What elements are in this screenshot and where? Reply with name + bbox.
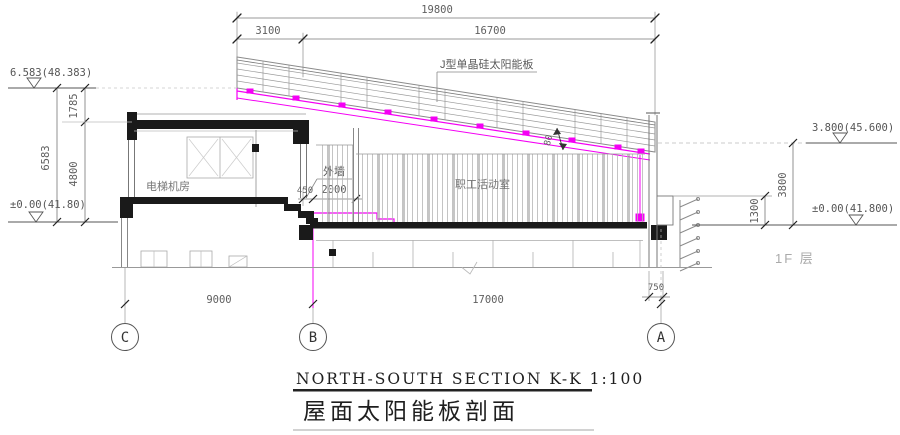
right-wall	[646, 113, 772, 271]
section-drawing-canvas: 19800 3100 16700 J型单晶硅太阳能板	[0, 0, 900, 435]
grid-bubbles: C B A	[112, 324, 675, 351]
cat-ladder	[680, 198, 700, 272]
dim-left-total: 6583	[40, 145, 52, 170]
right-dimensions: 1300 3800	[749, 139, 797, 229]
solar-panel-leader: J型单晶硅太阳能板	[437, 57, 537, 102]
floor-note: 1F 层	[775, 251, 815, 266]
dim-right-height: 3800	[777, 172, 789, 197]
elevator-room-building: 电梯机房	[120, 112, 318, 267]
level-left-top: 6.583(48.383)	[10, 67, 92, 79]
level-right-mid: 3.800(45.600)	[812, 122, 894, 134]
dim-top-seg1: 3100	[255, 25, 280, 37]
dim-top-seg2: 16700	[474, 25, 506, 37]
title-block: NORTH-SOUTH SECTION K-K 1:100 屋面太阳能板剖面	[293, 370, 644, 430]
dim-bay-ba: 17000	[472, 294, 504, 306]
solar-panel-label: J型单晶硅太阳能板	[440, 57, 534, 71]
level-right-zero: ±0.00(41.800)	[812, 203, 894, 215]
bottom-dimensions: 9000 17000 750	[121, 229, 670, 323]
grid-bubble-c: C	[121, 330, 129, 346]
section-drawing: 19800 3100 16700 J型单晶硅太阳能板	[0, 0, 900, 435]
dim-top-total: 19800	[421, 4, 453, 16]
dim-right-parapet: 1300	[749, 198, 761, 223]
ground-line	[112, 262, 712, 274]
activity-room: 职工活动室	[299, 128, 667, 267]
panel-joints	[263, 61, 627, 148]
dim-parapet-width: 450	[297, 186, 313, 196]
dim-left-upper: 1785	[68, 93, 80, 118]
title-chinese: 屋面太阳能板剖面	[303, 398, 519, 424]
level-left-zero: ±0.00(41.80)	[10, 199, 86, 211]
activity-room-label: 职工活动室	[455, 177, 510, 191]
dim-left-lower: 4800	[68, 161, 80, 186]
dim-offset-a: 750	[648, 283, 664, 293]
grid-bubble-a: A	[657, 330, 666, 346]
dim-bay-cb: 9000	[206, 294, 231, 306]
grid-bubble-b: B	[309, 330, 317, 346]
title-english: NORTH-SOUTH SECTION K-K 1:100	[296, 370, 644, 388]
elevator-room-label: 电梯机房	[146, 179, 190, 193]
